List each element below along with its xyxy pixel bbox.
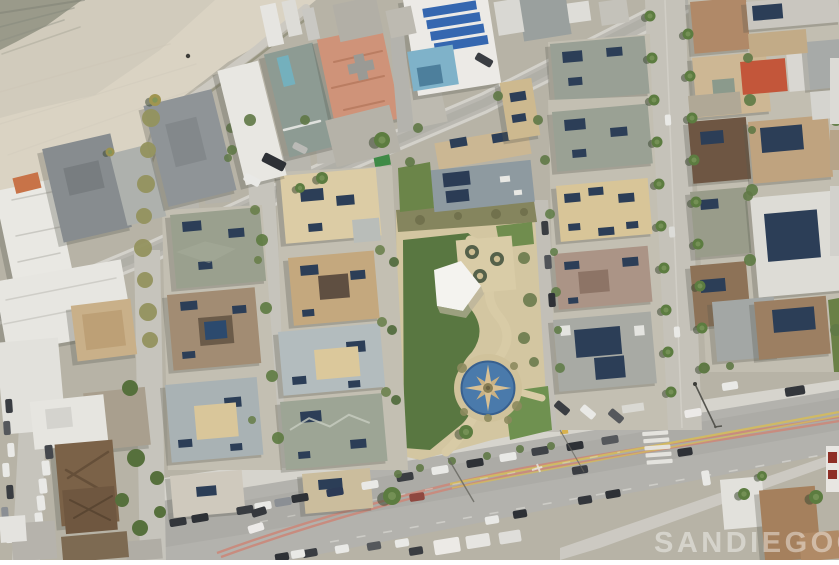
svg-text:SANDIEGOCOU: SANDIEGOCOU [654,527,839,559]
